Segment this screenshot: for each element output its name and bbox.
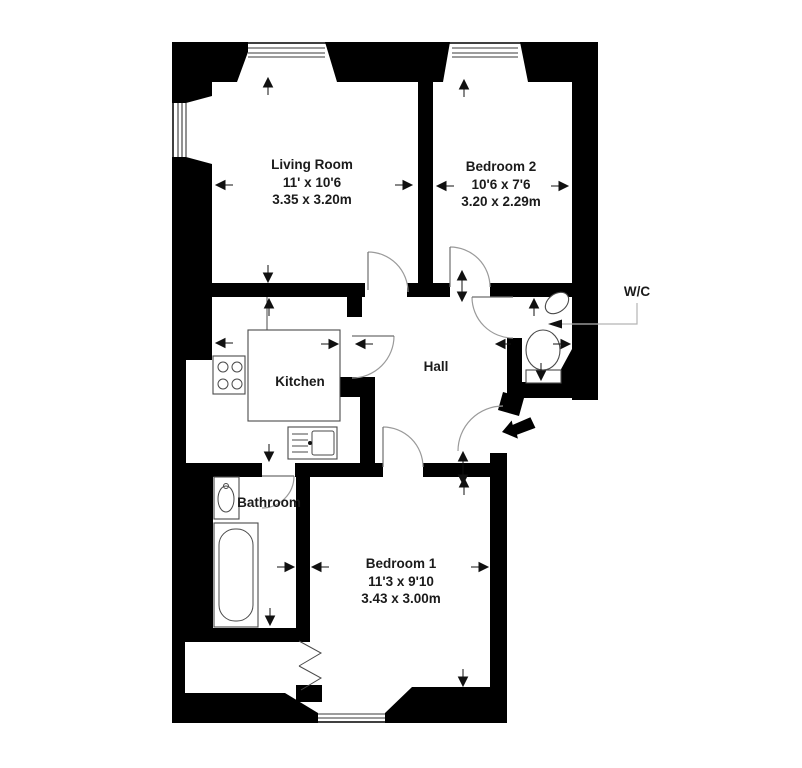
wall-left-upper — [172, 157, 212, 360]
marker-living-room-right — [395, 181, 412, 190]
marker-living-room-down — [264, 265, 273, 282]
door-living-room — [368, 252, 408, 292]
living-room-size-metric: 3.35 x 3.20m — [272, 192, 352, 207]
wall-storage-left — [172, 642, 185, 693]
marker-bedroom1-down — [459, 669, 468, 686]
window-living-room-side — [178, 103, 186, 157]
marker-living-room-left — [216, 181, 233, 190]
marker-bedroom1-left — [312, 563, 329, 572]
marker-bedroom2-door-down — [458, 284, 467, 301]
marker-living-room-up — [264, 78, 273, 95]
wall-hall-top-left — [212, 283, 365, 297]
marker-bedroom2-right — [551, 182, 568, 191]
door-bedroom2 — [450, 247, 490, 287]
wall-kitchen-right-lower — [340, 377, 375, 463]
wall-bottom-right-block — [385, 687, 490, 723]
bedroom1-label: Bedroom 1 — [366, 556, 437, 571]
marker-kitchen-up — [265, 299, 274, 316]
wall-left-kitchen — [172, 360, 186, 463]
wall-wc-bottom — [507, 382, 572, 398]
kitchen-label: Kitchen — [275, 374, 325, 389]
marker-bedroom2-left — [437, 182, 454, 191]
marker-kitchen-left — [216, 339, 233, 348]
wall-closet-nub — [296, 685, 322, 702]
bathroom-label: Bathroom — [237, 495, 301, 510]
bathtub — [214, 523, 258, 627]
window-bedroom1-bottom — [318, 714, 385, 718]
wall-bathroom-left — [172, 477, 213, 628]
wall-bedroom1-right — [490, 453, 507, 723]
living-room-size-imperial: 11' x 10'6 — [283, 175, 342, 190]
bedroom2-label: Bedroom 2 — [466, 159, 537, 174]
kitchen-sink — [288, 427, 337, 459]
wall-bathroom-bottom — [172, 628, 310, 642]
bathroom-basin — [214, 477, 239, 519]
marker-wc-up — [530, 299, 539, 316]
floorplan-drawing: Living Room 11' x 10'6 3.35 x 3.20m Bedr… — [0, 0, 802, 768]
marker-bathroom-right — [277, 563, 294, 572]
wall-bathroom-top-left — [172, 463, 262, 477]
door-bedroom1 — [383, 427, 423, 467]
bedroom1-size-metric: 3.43 x 3.00m — [361, 591, 441, 606]
wall-top-middle — [325, 42, 450, 82]
door-entrance — [458, 406, 503, 451]
kitchen-counter — [248, 297, 340, 421]
marker-bathroom-down — [266, 608, 275, 625]
window-living-room-top — [248, 48, 325, 57]
wc-leader-arrowhead — [548, 320, 562, 329]
door-closet-bifold — [299, 641, 321, 690]
hall-label: Hall — [424, 359, 449, 374]
wall-top-left-block — [172, 42, 248, 103]
marker-bedroom1-right — [471, 563, 488, 572]
window-bedroom2-top — [452, 48, 518, 57]
bedroom1-size-imperial: 11'3 x 9'10 — [368, 574, 434, 589]
marker-kitchen-door-left — [356, 340, 373, 349]
kitchen-hob — [213, 356, 245, 394]
wall-bedroom1-top-left — [295, 463, 383, 477]
wall-divider-living-bed2 — [418, 82, 433, 295]
wall-kitchen-right-upper — [347, 283, 362, 317]
wc-label: W/C — [624, 284, 650, 299]
floorplan-page: Living Room 11' x 10'6 3.35 x 3.20m Bedr… — [0, 0, 802, 768]
bedroom2-size-metric: 3.20 x 2.29m — [461, 194, 541, 209]
entrance-arrow-icon — [500, 416, 537, 442]
door-wc — [472, 297, 513, 338]
marker-bedroom2-up — [460, 80, 469, 97]
wall-hall-top-mid — [407, 283, 450, 297]
bedroom2-size-imperial: 10'6 x 7'6 — [472, 177, 531, 192]
marker-kitchen-down — [265, 444, 274, 461]
living-room-label: Living Room — [271, 157, 353, 172]
